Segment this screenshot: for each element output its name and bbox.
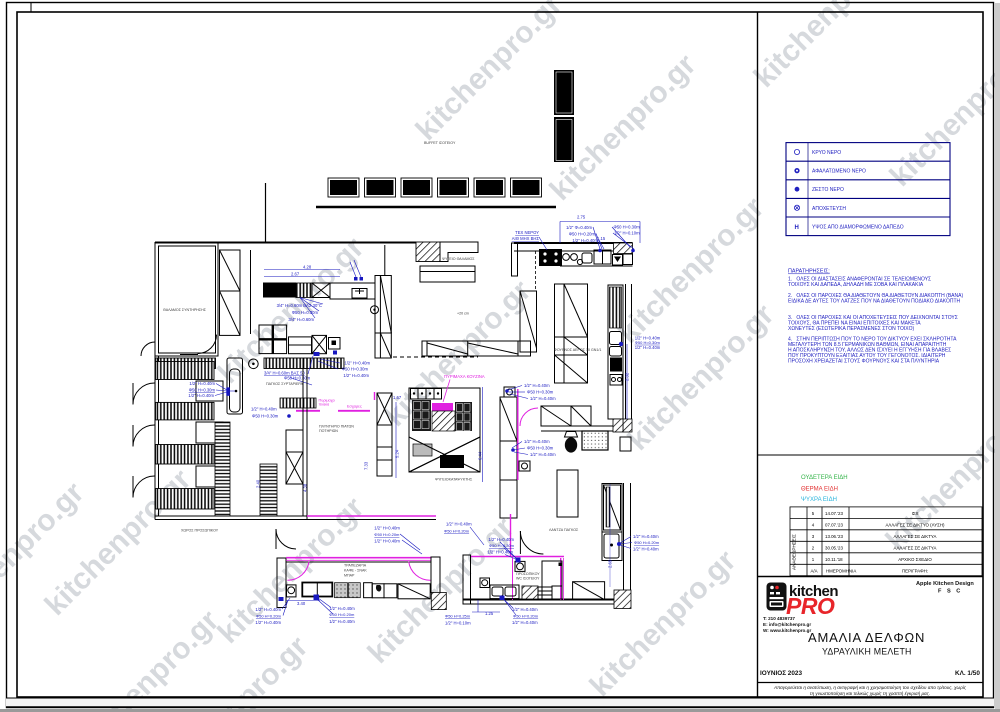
svg-text:ΙΣΧ: ΙΣΧ	[912, 511, 919, 516]
svg-text:10.11.'18: 10.11.'18	[825, 557, 843, 562]
svg-text:1/2" Η=0.40m: 1/2" Η=0.40m	[329, 619, 355, 624]
svg-text:2.40: 2.40	[256, 479, 261, 488]
svg-text:ΚΛ. 1/50: ΚΛ. 1/50	[955, 670, 980, 677]
svg-text:1/2" Η=0.40m: 1/2" Η=0.40m	[488, 537, 514, 542]
svg-text:ΠΟΤΗΡΙΩΝ: ΠΟΤΗΡΙΩΝ	[319, 429, 338, 433]
svg-text:WC ΙΣΟΓΕΙΟΥ: WC ΙΣΟΓΕΙΟΥ	[516, 577, 540, 581]
svg-text:Φ50 Η=0.20m: Φ50 Η=0.20m	[374, 532, 400, 537]
svg-text:1/2" Η=0.40m: 1/2" Η=0.40m	[189, 381, 215, 386]
svg-text:1/2" Η=0.10m: 1/2" Η=0.10m	[614, 231, 640, 236]
svg-text:kitchenpro.gr: kitchenpro.gr	[410, 0, 569, 147]
svg-text:kitchenpro.gr: kitchenpro.gr	[0, 476, 91, 635]
svg-text:ΕΙΔΙΚΑ ΔΕ ΑΥΤΕΣ ΤΟΥ ΛΑΤΖΕΣ ΠΟΥ: ΕΙΔΙΚΑ ΔΕ ΑΥΤΕΣ ΤΟΥ ΛΑΤΖΕΣ ΠΟΥ ΝΑ ΔΙΑΘΕΤ…	[788, 299, 961, 305]
svg-text:1/2" Η=0.40m: 1/2" Η=0.40m	[251, 407, 277, 412]
svg-text:Φ50 Η=0.30m: Φ50 Η=0.30m	[527, 446, 554, 451]
svg-text:1/2" Η=0.40m: 1/2" Η=0.40m	[530, 452, 556, 457]
svg-text:ΖΕΣΤΟ ΝΕΡΟ: ΖΕΣΤΟ ΝΕΡΟ	[812, 187, 844, 193]
svg-text:ΨΥΧΡΑ ΕΙΔΗ: ΨΥΧΡΑ ΕΙΔΗ	[801, 497, 837, 503]
svg-text:ΜΠΑΡ: ΜΠΑΡ	[344, 574, 355, 578]
svg-text:07.07.'23: 07.07.'23	[825, 523, 843, 528]
svg-text:ΠΑΡΑΤΗΡΗΣΕΙΣ:: ΠΑΡΑΤΗΡΗΣΕΙΣ:	[788, 269, 830, 275]
svg-text:2.67: 2.67	[291, 272, 300, 277]
svg-text:ΠΡΟΣΟΧΗ ΧΡΕΙΑΖΕΤΑΙ ΣΤΟΥΣ ΦΟΥΡΝ: ΠΡΟΣΟΧΗ ΧΡΕΙΑΖΕΤΑΙ ΣΤΟΥΣ ΦΟΥΡΝΟΥΣ ΚΑΙ ΣΤ…	[788, 359, 940, 365]
svg-text:ΙΟΥΝΙΟΣ 2023: ΙΟΥΝΙΟΣ 2023	[760, 670, 802, 677]
svg-text:1/2" Η=0.40m: 1/2" Η=0.40m	[633, 534, 659, 539]
svg-text:3: 3	[812, 534, 815, 539]
svg-text:1/2" Η=0.40m: 1/2" Η=0.40m	[255, 607, 281, 612]
svg-text:Φ50 Η=0.30m: Φ50 Η=0.30m	[614, 225, 641, 230]
svg-text:ΚΡΥΟ ΝΕΡΟ: ΚΡΥΟ ΝΕΡΟ	[812, 150, 841, 156]
svg-text:ΠΛΥΝΤΗΡΙΟ ΠΙΑΤΩΝ: ΠΛΥΝΤΗΡΙΟ ΠΙΑΤΩΝ	[319, 425, 354, 429]
svg-text:ΑΦΑΛΑΤΩΜΕΝΟ ΝΕΡΟ: ΑΦΑΛΑΤΩΜΕΝΟ ΝΕΡΟ	[812, 169, 866, 175]
svg-text:3/4" Η=0.60m: 3/4" Η=0.60m	[288, 317, 314, 322]
svg-text:ΑΛΛΑΓΕΣ ΣΕ ΔΙΚΤΥΑ: ΑΛΛΑΓΕΣ ΣΕ ΔΙΚΤΥΑ	[894, 546, 937, 551]
svg-text:ΤΕΧ ΝΕΡΟΥ: ΤΕΧ ΝΕΡΟΥ	[515, 230, 539, 235]
svg-text:Φ50 Η=0.30m: Φ50 Η=0.30m	[342, 367, 369, 372]
svg-text:1/2" Η=0.40m: 1/2" Η=0.40m	[374, 539, 400, 544]
svg-text:2: 2	[812, 546, 815, 551]
svg-text:1/2" Η=0.40m: 1/2" Η=0.40m	[572, 238, 598, 243]
svg-text:Φ50 Η=0.20m: Φ50 Η=0.20m	[569, 232, 596, 237]
svg-text:Φ50 Η=0.20m: Φ50 Η=0.20m	[513, 614, 539, 619]
svg-text:1/2" Η=0.40m: 1/2" Η=0.40m	[512, 620, 538, 625]
svg-text:W: www.kitchenpro.gr: W: www.kitchenpro.gr	[763, 628, 811, 633]
svg-text:1/2" Η=0.40m: 1/2" Η=0.40m	[329, 606, 355, 611]
svg-text:Τ: 210 4839737: Τ: 210 4839737	[763, 616, 795, 621]
svg-text:ΦΟΥΡΝΟΣ ΑΕΡΟΣ 10 GN1/1: ΦΟΥΡΝΟΣ ΑΕΡΟΣ 10 GN1/1	[554, 348, 601, 352]
svg-text:ΘΕΡΜΑ ΕΙΔΗ: ΘΕΡΜΑ ΕΙΔΗ	[801, 487, 838, 493]
svg-text:4.38: 4.38	[303, 483, 308, 492]
svg-text:13.06.'23: 13.06.'23	[825, 534, 843, 539]
svg-text:Φ50 Η=0.30m: Φ50 Η=0.30m	[527, 390, 554, 395]
svg-text:14.07.'23: 14.07.'23	[825, 511, 843, 516]
svg-text:ΚΑΦΕ - ΣΝΑΚ: ΚΑΦΕ - ΣΝΑΚ	[344, 569, 367, 573]
svg-text:ΛΑΝΤΖΑ ΠΑΓΚΟΣ: ΛΑΝΤΖΑ ΠΑΓΚΟΣ	[549, 528, 579, 532]
svg-text:Απαγορεύεται η ανατύπωση, η αν: Απαγορεύεται η ανατύπωση, η αντιγραφή κα…	[773, 684, 967, 690]
svg-text:ΠΡΟΣΩΠΙΚΟΥ: ΠΡΟΣΩΠΙΚΟΥ	[516, 572, 540, 576]
svg-text:Φ50 Η=0.20m: Φ50 Η=0.20m	[256, 614, 282, 619]
svg-text:6.44: 6.44	[478, 451, 483, 460]
svg-text:ΑΛΛΑΓΕΣ ΣΕ ΔΙΚΤΥΟ (ΛΥΣΗ): ΑΛΛΑΓΕΣ ΣΕ ΔΙΚΤΥΟ (ΛΥΣΗ)	[885, 523, 945, 528]
svg-text:H: H	[795, 225, 799, 231]
svg-text:ΑΠΟΧΕΤΕΥΣΗ: ΑΠΟΧΕΤΕΥΣΗ	[812, 206, 846, 212]
svg-text:1/2" Η=0.40m: 1/2" Η=0.40m	[530, 396, 556, 401]
svg-text:1/2" Η=0.40m: 1/2" Η=0.40m	[524, 383, 550, 388]
svg-text:ΨΥΓΕΙΟ ΘΑΛΑΜΟΣ: ΨΥΓΕΙΟ ΘΑΛΑΜΟΣ	[442, 257, 475, 261]
svg-text:τη γνωστοποίηση και τελικώς χω: τη γνωστοποίηση και τελικώς χωρίς τη γρα…	[810, 690, 930, 696]
svg-text:1/2" Η=0.40m: 1/2" Η=0.40m	[635, 345, 661, 350]
svg-text:1/2" Η=0.10m: 1/2" Η=0.10m	[445, 621, 471, 626]
svg-text:BUFFET ΙΣΟΓΕΙΟΥ: BUFFET ΙΣΟΓΕΙΟΥ	[424, 141, 456, 145]
svg-text:1/2" Η=0.40m: 1/2" Η=0.40m	[374, 526, 400, 531]
svg-text:1/2" Η=0.40m: 1/2" Η=0.40m	[446, 522, 472, 527]
svg-text:Φ50 Η=0.25m: Φ50 Η=0.25m	[445, 614, 471, 619]
svg-text:Φ50 Η=0.20m: Φ50 Η=0.20m	[634, 540, 660, 545]
svg-text:1.67: 1.67	[393, 395, 402, 400]
svg-text:ΑΛΛΑΓΕΣ ΣΕ ΔΙΚΤΥΑ: ΑΛΛΑΓΕΣ ΣΕ ΔΙΚΤΥΑ	[894, 534, 937, 539]
svg-text:ΨΥΓΕΙΟΚΑΤΑΨΥΚΤΗΣ: ΨΥΓΕΙΟΚΑΤΑΨΥΚΤΗΣ	[435, 478, 473, 482]
svg-text:kitchenpro.gr: kitchenpro.gr	[67, 604, 226, 712]
svg-text:ΠΕΡΙΓΡΑΦΗ:: ΠΕΡΙΓΡΑΦΗ:	[902, 569, 928, 574]
svg-text:1/2" Η=0.40m: 1/2" Η=0.40m	[512, 607, 538, 612]
svg-text:4.28: 4.28	[303, 265, 312, 270]
svg-text:Φ50 Η=0.20m: Φ50 Η=0.20m	[329, 612, 355, 617]
svg-text:ΑΜΑΛΙΑ ΔΕΛΦΩΝ: ΑΜΑΛΙΑ ΔΕΛΦΩΝ	[808, 630, 925, 645]
svg-text:ΧΩΡΟΣ ΠΡΟΣΩΠΙΚΟΥ: ΧΩΡΟΣ ΠΡΟΣΩΠΙΚΟΥ	[181, 529, 219, 533]
svg-text:1: 1	[812, 557, 815, 562]
svg-text:5.24: 5.24	[395, 449, 400, 458]
svg-text:2.75: 2.75	[577, 215, 586, 220]
svg-text:4: 4	[812, 523, 815, 528]
svg-text:ΠΥΡΙΜΑΧΑ ΚΟΥΖΙΝΑ: ΠΥΡΙΜΑΧΑ ΚΟΥΖΙΝΑ	[444, 374, 485, 379]
svg-text:1/2" Η=0.40m: 1/2" Η=0.40m	[188, 393, 214, 398]
svg-text:F S C: F S C	[938, 589, 962, 595]
svg-text:kitchenpro.gr: kitchenpro.gr	[748, 0, 907, 94]
svg-text:ΑΝΑΘΕΩΡΗΣΕΙΣ: ΑΝΑΘΕΩΡΗΣΕΙΣ	[792, 534, 797, 570]
svg-text:ΥΨΟΣ ΑΠΟ ΔΙΑΜΟΡΦΩΜΕΝΟ ΔΑΠΕΔΟ: ΥΨΟΣ ΑΠΟ ΔΙΑΜΟΡΦΩΜΕΝΟ ΔΑΠΕΔΟ	[812, 224, 904, 230]
svg-text:ΥΔΡΑΥΛΙΚΗ ΜΕΛΕΤΗ: ΥΔΡΑΥΛΙΚΗ ΜΕΛΕΤΗ	[822, 647, 912, 657]
svg-text:+20 cm: +20 cm	[457, 312, 469, 316]
svg-text:Φ50 Η=0.30m: Φ50 Η=0.30m	[189, 388, 216, 393]
svg-text:3/4" Η=0.60m ΒΑΣ 30°C: 3/4" Η=0.60m ΒΑΣ 30°C	[277, 303, 322, 308]
svg-text:Α/Α: Α/Α	[810, 569, 817, 574]
svg-text:ΤΡΑΠΕΖΑΡΙΑ: ΤΡΑΠΕΖΑΡΙΑ	[344, 564, 367, 568]
svg-text:ΟΥΔΕΤΕΡΑ ΕΙΔΗ: ΟΥΔΕΤΕΡΑ ΕΙΔΗ	[801, 475, 848, 481]
svg-text:1/2" Η=0.40m: 1/2" Η=0.40m	[633, 547, 659, 552]
svg-text:1/2" Φ=0.40m: 1/2" Φ=0.40m	[566, 225, 592, 230]
svg-text:1/2" Η=0.40m: 1/2" Η=0.40m	[344, 361, 370, 366]
svg-text:Εσχαρες: Εσχαρες	[347, 405, 362, 409]
svg-text:ΑΡΧΙΚΟ ΣΧΕΔΙΟ: ΑΡΧΙΚΟ ΣΧΕΔΙΟ	[898, 557, 932, 562]
svg-text:ΘΑΛΑΜΟΣ ΣΥΝΤΗΡΗΣΗΣ: ΘΑΛΑΜΟΣ ΣΥΝΤΗΡΗΣΗΣ	[163, 308, 207, 312]
svg-text:ΤΟΙΧΟΥΣ ΚΑΙ ΔΑΠΕΔΑ, ΔΗΛΑΔΗ ΜΕ: ΤΟΙΧΟΥΣ ΚΑΙ ΔΑΠΕΔΑ, ΔΗΛΑΔΗ ΜΕ ΣΟΒΑ ΚΑΙ Π…	[788, 282, 924, 288]
svg-text:1/2" Η=0.40m: 1/2" Η=0.40m	[343, 373, 369, 378]
svg-text:Apple Kitchen Design: Apple Kitchen Design	[916, 581, 974, 587]
svg-text:ΠΑΓΚΟΣ ΣΥΡΤΑΡΙΕΡΑ: ΠΑΓΚΟΣ ΣΥΡΤΑΡΙΕΡΑ	[266, 382, 304, 386]
svg-text:2.65: 2.65	[608, 559, 613, 568]
svg-text:1/2" Η=0.40m: 1/2" Η=0.40m	[255, 620, 281, 625]
svg-text:ΑΙΘ ΜΗΧ ΒΗΣ: ΑΙΘ ΜΗΧ ΒΗΣ	[512, 236, 540, 241]
svg-text:πλακα: πλακα	[319, 403, 331, 407]
svg-text:1/2" Η=0.40m: 1/2" Η=0.40m	[524, 439, 550, 444]
svg-text:Φ50 Η=0.30m: Φ50 Η=0.30m	[292, 310, 319, 315]
svg-text:ΗΜΕΡΟΜΗΝΙΑ: ΗΜΕΡΟΜΗΝΙΑ	[826, 569, 856, 574]
svg-text:ΧΩΝΕΥΤΕΣ (ΕΣΩΤΕΡΙΚΑ ΠΕΡΑΣΜΕΝΕΣ: ΧΩΝΕΥΤΕΣ (ΕΣΩΤΕΡΙΚΑ ΠΕΡΑΣΜΕΝΕΣ ΣΤΟΝ ΤΟΙΧ…	[788, 326, 915, 332]
svg-text:Ε: info@kitchenpro.gr: Ε: info@kitchenpro.gr	[763, 622, 811, 627]
svg-text:5: 5	[812, 511, 815, 516]
svg-text:30.05.'23: 30.05.'23	[825, 546, 843, 551]
svg-text:Φ50 Η=0.30m: Φ50 Η=0.30m	[252, 414, 279, 419]
svg-text:2.32: 2.32	[625, 372, 630, 381]
svg-text:Φ50 Η=0.20m: Φ50 Η=0.20m	[444, 529, 470, 534]
svg-text:3.40: 3.40	[297, 601, 306, 606]
svg-text:7.33: 7.33	[364, 461, 369, 470]
